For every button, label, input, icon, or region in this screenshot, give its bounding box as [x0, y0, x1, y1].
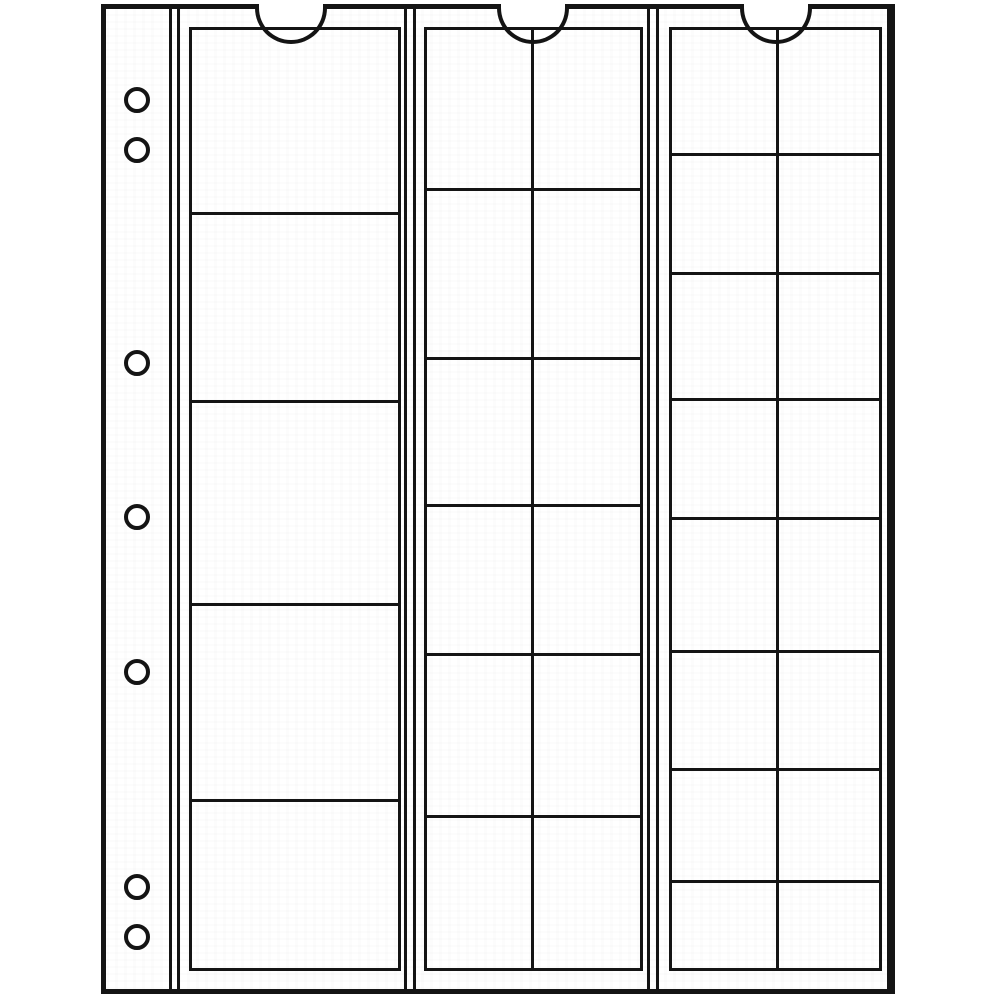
binder-hole-4: [124, 504, 150, 530]
binder-hole-1: [124, 87, 150, 113]
binder-hole-7: [124, 924, 150, 950]
binder-hole-5: [124, 659, 150, 685]
binder-margin-line: [169, 9, 172, 989]
coin-sheet-product-image: [0, 0, 1000, 1000]
strip-large-pockets-row-weld-2: [189, 400, 401, 403]
strip-small-pockets-column-weld-1: [776, 27, 779, 971]
strip-large-pockets-row-weld-1: [189, 212, 401, 215]
binder-hole-2: [124, 137, 150, 163]
strip-large-pockets-row-weld-4: [189, 799, 401, 802]
strip-large-pockets-pocket-outline: [189, 27, 401, 971]
strip-medium-pockets-column-weld-1: [531, 27, 534, 971]
strip-large-pockets-row-weld-3: [189, 603, 401, 606]
binder-hole-3: [124, 350, 150, 376]
binder-hole-6: [124, 874, 150, 900]
